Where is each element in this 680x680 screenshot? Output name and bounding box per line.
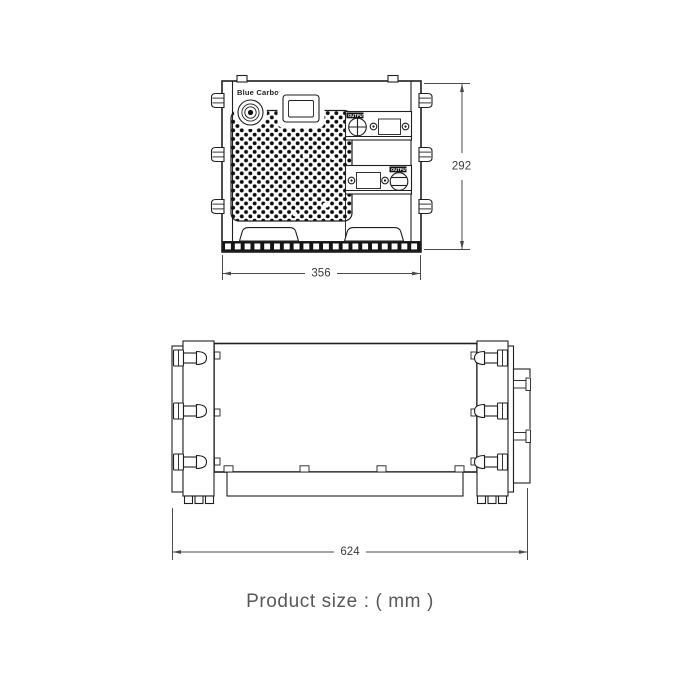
mesh-speck	[293, 212, 298, 217]
terminal-window	[379, 119, 401, 135]
side-bottom-band	[227, 472, 463, 496]
terminal-window	[357, 173, 381, 189]
display-screen	[278, 90, 325, 128]
dimension-width: 356	[223, 255, 421, 280]
dimension-length-value: 624	[340, 546, 360, 558]
output-terminal-upper: OUTPUT	[346, 112, 412, 141]
dimension-length: 624	[173, 488, 528, 560]
ac-connector-icon	[349, 118, 367, 136]
dimension-width-value: 356	[311, 268, 330, 280]
bottom-handle-right	[345, 228, 404, 241]
side-connector-plate	[514, 369, 535, 483]
bottom-handle-left	[240, 228, 299, 241]
front-top-tab-right	[388, 76, 398, 83]
front-top-tab-left	[237, 76, 247, 83]
dimension-height: 292	[424, 84, 471, 250]
right-feet	[478, 496, 507, 504]
drawing-canvas: Blue Carbon OUTPUT	[0, 0, 680, 680]
technical-drawing: Blue Carbon OUTPUT	[0, 0, 680, 680]
side-right-bracket	[475, 341, 514, 504]
output-terminal-lower: OUTPUT	[346, 166, 412, 195]
output-label-upper: OUTPUT	[348, 113, 366, 118]
left-feet	[185, 496, 214, 504]
dc-connector-icon	[390, 173, 408, 191]
side-view: 624	[172, 341, 534, 560]
front-view: Blue Carbon OUTPUT	[212, 76, 472, 281]
dimension-height-value: 292	[452, 161, 471, 173]
caption-product-size: Product size : ( mm )	[0, 591, 680, 613]
mesh-speck	[323, 202, 330, 207]
mesh-speck	[331, 156, 335, 160]
output-label-lower: OUTPUT	[391, 167, 409, 172]
brand-logo-text: Blue Carbon	[237, 88, 284, 97]
power-knob	[234, 96, 267, 129]
side-left-bracket	[172, 341, 214, 504]
bottom-vent-rail	[223, 242, 421, 252]
mesh-speck	[303, 153, 310, 158]
side-body	[214, 344, 477, 473]
